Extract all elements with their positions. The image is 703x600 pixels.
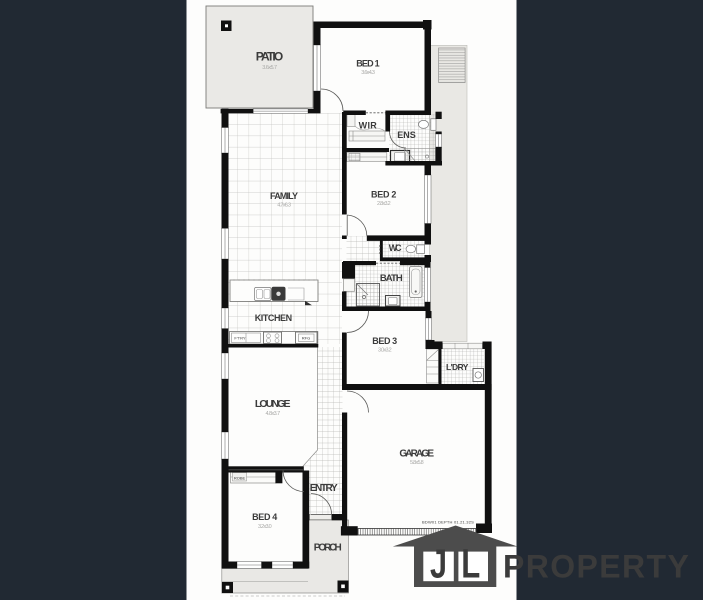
svg-text:BED 2: BED 2 (371, 189, 397, 199)
svg-text:3.2x3.0: 3.2x3.0 (258, 524, 272, 530)
svg-text:J: J (430, 541, 447, 587)
svg-text:GARAGE: GARAGE (399, 448, 434, 459)
svg-text:L'DRY: L'DRY (446, 362, 469, 372)
svg-text:BED 1: BED 1 (356, 58, 380, 68)
svg-text:ENTRY: ENTRY (310, 483, 339, 494)
svg-text:WIR: WIR (359, 121, 378, 131)
svg-text:PROPERTY: PROPERTY (503, 549, 690, 585)
svg-text:WC: WC (389, 243, 403, 253)
svg-text:3.6x5.7: 3.6x5.7 (262, 65, 277, 71)
svg-text:F'TRY: F'TRY (234, 336, 245, 341)
svg-text:3.0x3.2: 3.0x3.2 (378, 348, 392, 354)
svg-text:4.8x3.7: 4.8x3.7 (266, 411, 281, 417)
svg-text:BED 3: BED 3 (372, 336, 397, 346)
svg-text:FAMILY: FAMILY (270, 191, 299, 201)
svg-text:5.8x5.8: 5.8x5.8 (410, 460, 424, 466)
svg-text:2.8x3.2: 2.8x3.2 (377, 201, 391, 207)
svg-text:ROBE: ROBE (234, 476, 246, 481)
svg-text:4.7x6.3: 4.7x6.3 (277, 203, 291, 209)
svg-text:LOUNGE: LOUNGE (255, 398, 291, 410)
svg-text:PATIO: PATIO (256, 49, 284, 63)
svg-text:L: L (461, 541, 480, 587)
svg-text:ENS: ENS (397, 130, 416, 140)
svg-text:3.6x4.3: 3.6x4.3 (361, 70, 375, 76)
svg-text:BATH: BATH (380, 273, 403, 284)
svg-text:BDW01 DEPTH 01.21.32S: BDW01 DEPTH 01.21.32S (422, 520, 474, 525)
svg-text:BED 4: BED 4 (252, 512, 278, 522)
svg-text:KITCHEN: KITCHEN (255, 313, 293, 323)
svg-text:PORCH: PORCH (314, 542, 343, 553)
svg-text:RFG: RFG (302, 336, 310, 341)
